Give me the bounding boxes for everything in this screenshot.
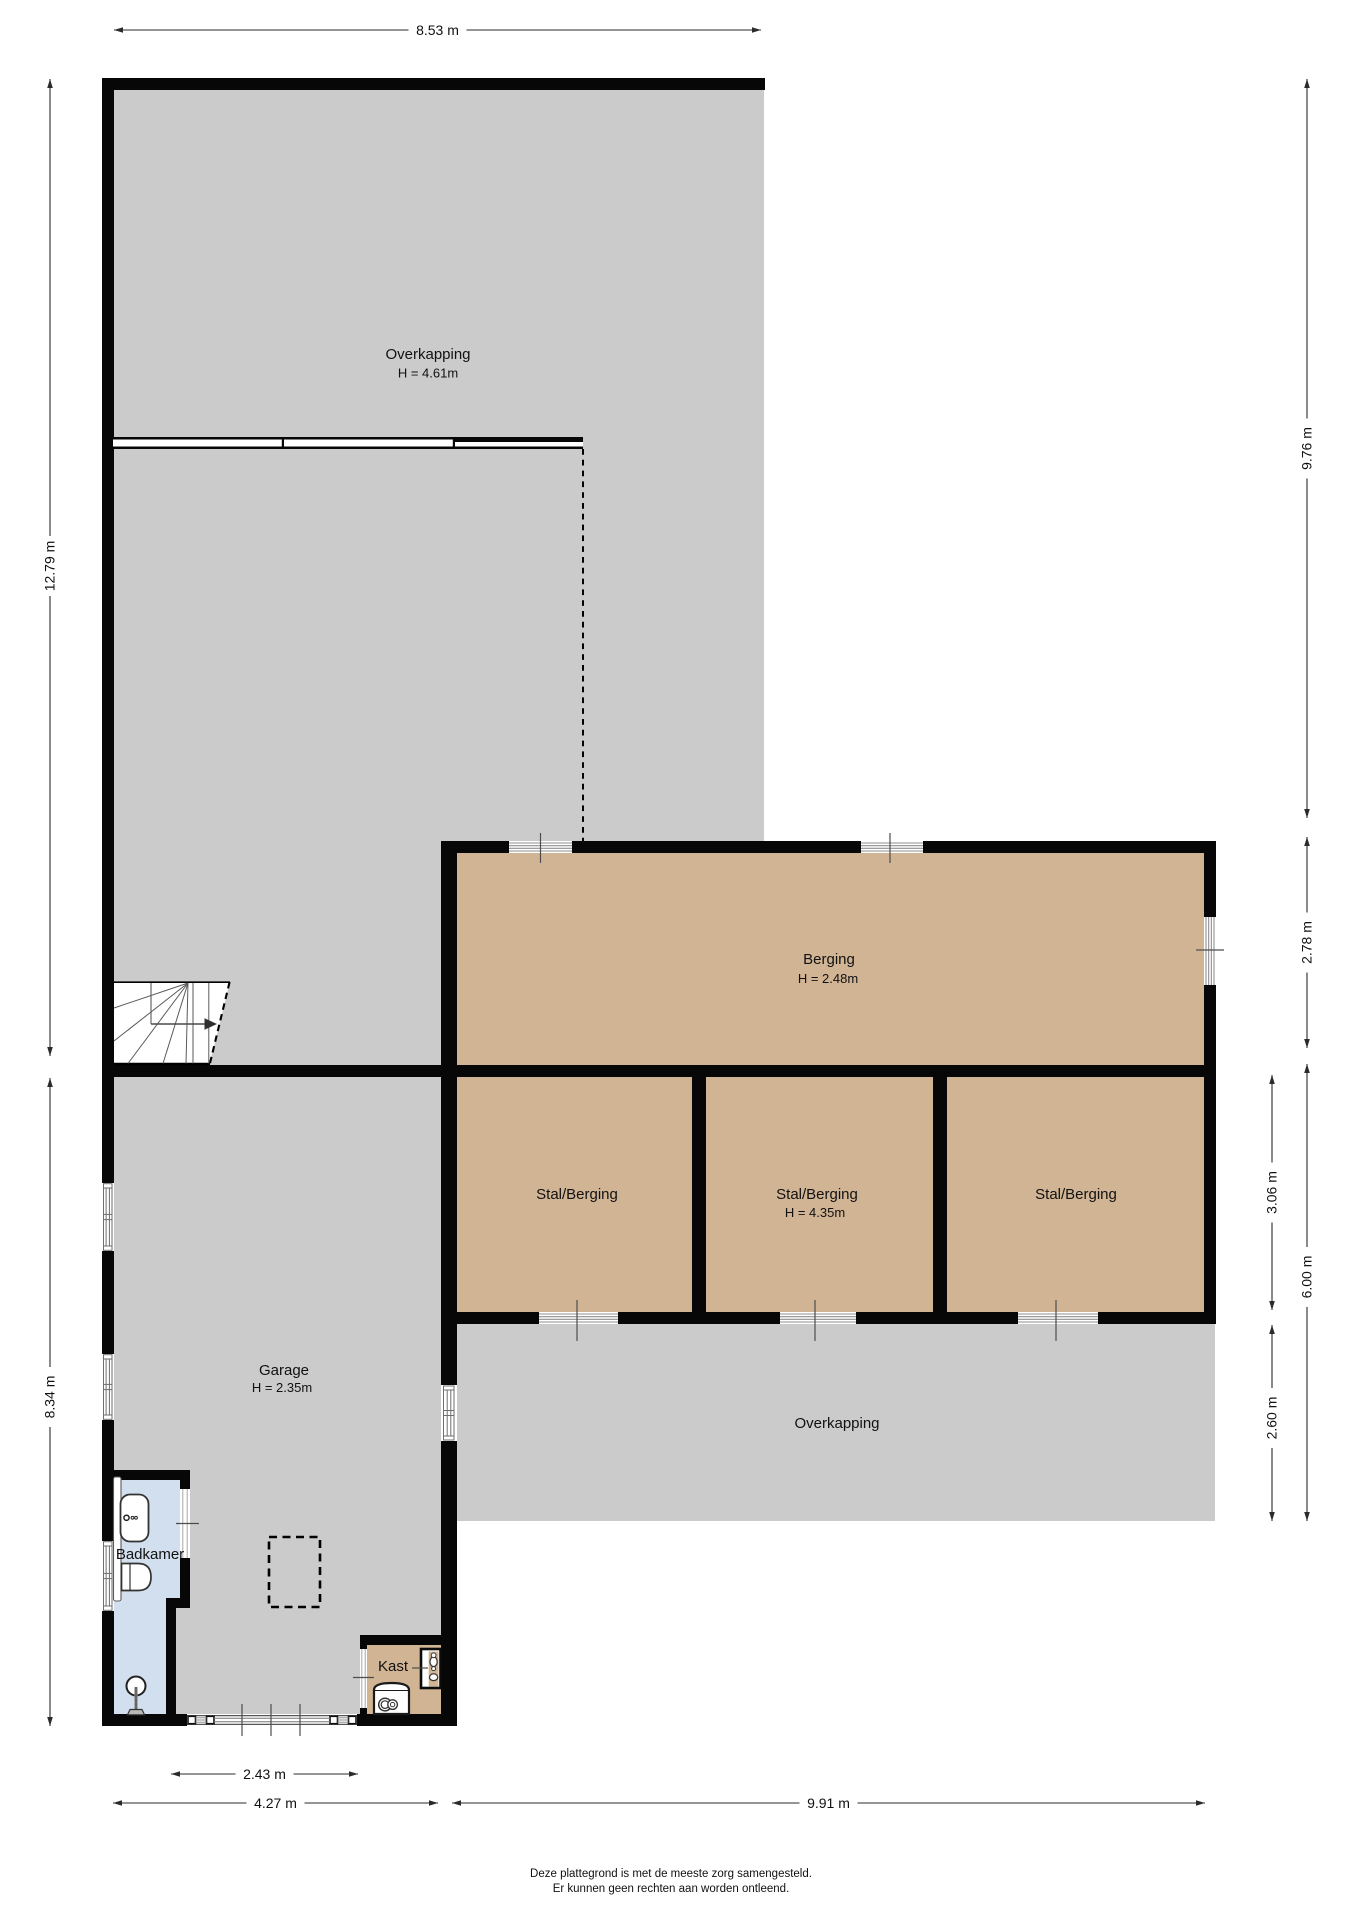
svg-text:Kast: Kast [378, 1658, 409, 1675]
svg-text:12.79 m: 12.79 m [42, 541, 58, 592]
svg-text:9.76 m: 9.76 m [1299, 427, 1315, 470]
svg-text:4.27 m: 4.27 m [254, 1795, 297, 1811]
svg-text:8.53 m: 8.53 m [416, 22, 459, 38]
svg-text:Stal/Berging: Stal/Berging [1035, 1186, 1117, 1203]
svg-text:Badkamer: Badkamer [116, 1546, 184, 1563]
svg-text:8.34 m: 8.34 m [42, 1376, 58, 1419]
svg-text:Er kunnen geen rechten aan wor: Er kunnen geen rechten aan worden ontlee… [553, 1883, 790, 1895]
svg-text:9.91 m: 9.91 m [807, 1795, 850, 1811]
svg-text:Overkapping: Overkapping [794, 1415, 879, 1432]
svg-text:H = 4.61m: H = 4.61m [398, 366, 458, 381]
svg-text:2.78 m: 2.78 m [1299, 921, 1315, 964]
svg-text:2.43 m: 2.43 m [243, 1766, 286, 1782]
svg-text:Berging: Berging [803, 951, 855, 968]
svg-text:Stal/Berging: Stal/Berging [776, 1186, 858, 1203]
svg-text:3.06 m: 3.06 m [1264, 1171, 1280, 1214]
svg-text:H = 2.48m: H = 2.48m [798, 971, 858, 986]
svg-text:H = 4.35m: H = 4.35m [785, 1205, 845, 1220]
svg-text:H = 2.35m: H = 2.35m [252, 1380, 312, 1395]
svg-text:Garage: Garage [259, 1362, 309, 1379]
svg-text:Stal/Berging: Stal/Berging [536, 1186, 618, 1203]
svg-text:2.60 m: 2.60 m [1264, 1397, 1280, 1440]
svg-text:Overkapping: Overkapping [385, 346, 470, 363]
svg-text:6.00 m: 6.00 m [1299, 1256, 1315, 1299]
svg-text:Deze plattegrond is met de mee: Deze plattegrond is met de meeste zorg s… [530, 1868, 812, 1880]
